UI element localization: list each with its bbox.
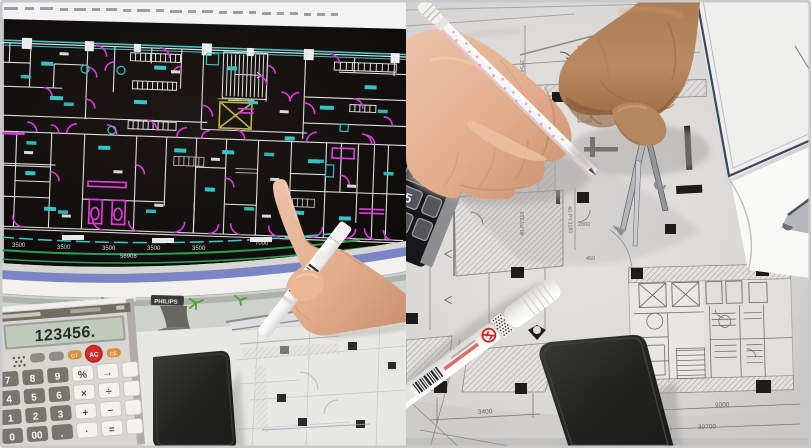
svg-text:×: × — [81, 388, 88, 399]
svg-text:+: + — [82, 407, 89, 418]
svg-text:30700: 30700 — [698, 423, 717, 431]
svg-text:00: 00 — [31, 430, 43, 442]
svg-text:3500: 3500 — [147, 246, 161, 252]
svg-text:→: → — [102, 367, 113, 379]
svg-text:AC: AC — [89, 351, 99, 359]
svg-text:3500: 3500 — [102, 246, 116, 252]
svg-text:9000: 9000 — [715, 401, 730, 409]
svg-text:CE: CE — [110, 351, 118, 358]
svg-text:3400: 3400 — [478, 408, 493, 416]
svg-text:3500: 3500 — [192, 246, 206, 252]
svg-text:=: = — [109, 424, 116, 435]
svg-text:3500: 3500 — [12, 243, 26, 249]
svg-text:%: % — [78, 369, 88, 381]
svg-text:−: − — [107, 405, 114, 416]
svg-text:PHILIPS: PHILIPS — [154, 299, 177, 306]
svg-text:3500: 3500 — [57, 245, 71, 251]
svg-text:GT: GT — [71, 353, 78, 360]
svg-text:56908: 56908 — [120, 254, 137, 260]
